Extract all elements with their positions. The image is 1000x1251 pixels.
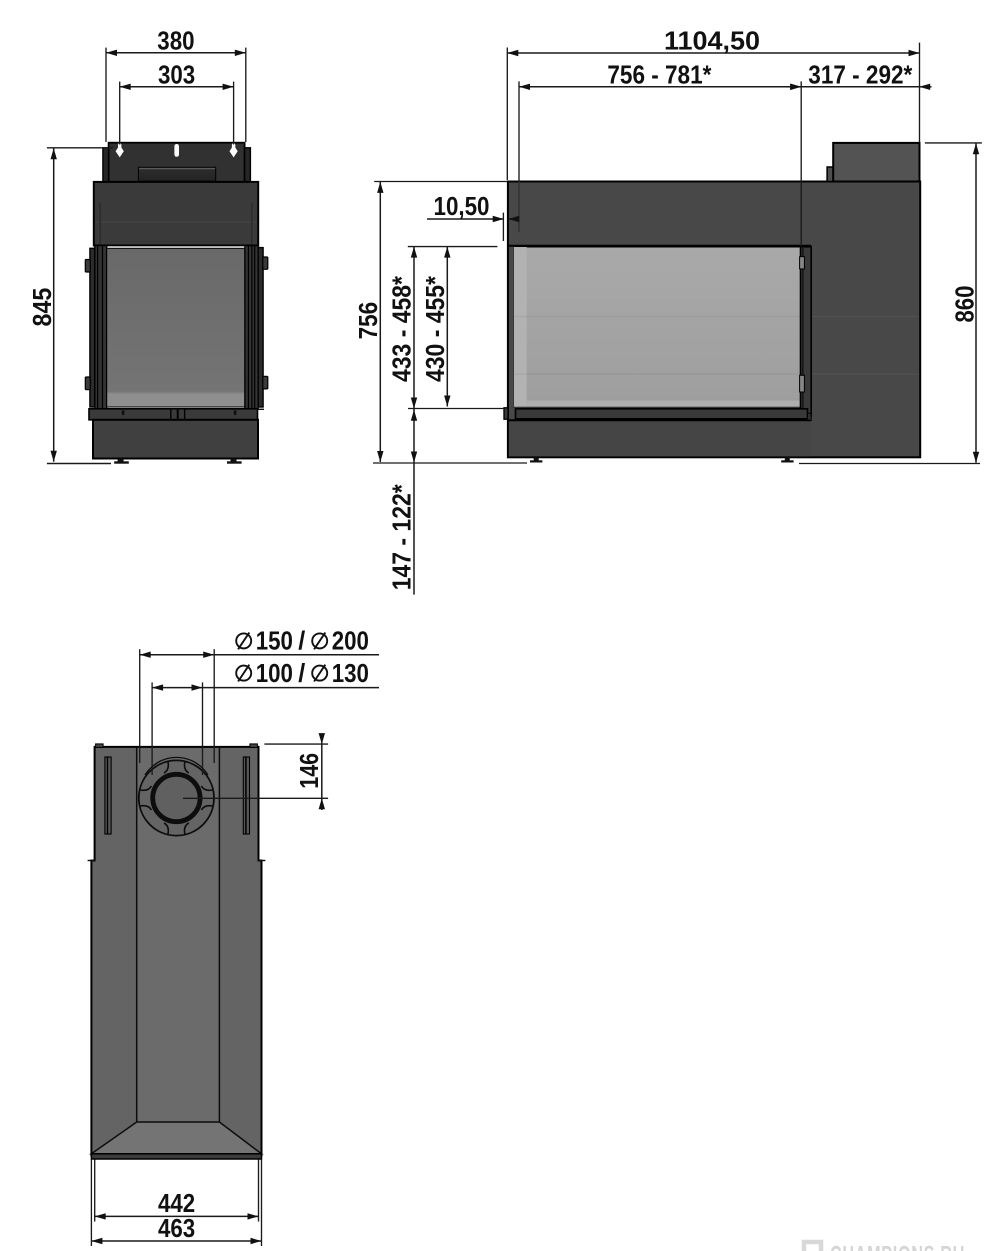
svg-text:200: 200	[332, 626, 369, 656]
svg-text:433 - 458*: 433 - 458*	[387, 275, 417, 382]
svg-text:430 - 455*: 430 - 455*	[420, 275, 450, 382]
svg-text:303: 303	[158, 59, 195, 89]
svg-text:756 - 781*: 756 - 781*	[607, 59, 712, 89]
svg-text:147 - 122*: 147 - 122*	[387, 484, 417, 591]
svg-text:860: 860	[950, 285, 980, 322]
svg-text:845: 845	[27, 288, 57, 327]
svg-text:10,50: 10,50	[434, 191, 490, 221]
svg-text:100: 100	[256, 658, 293, 688]
svg-text:380: 380	[157, 25, 194, 55]
svg-text:317 - 292*: 317 - 292*	[808, 59, 913, 89]
svg-text:/: /	[298, 626, 305, 656]
svg-text:146: 146	[294, 753, 324, 789]
svg-text:130: 130	[332, 658, 369, 688]
svg-text:/: /	[298, 658, 305, 688]
svg-text:463: 463	[158, 1213, 195, 1243]
svg-text:150: 150	[256, 626, 293, 656]
svg-text:756: 756	[353, 302, 383, 340]
svg-text:CHAMPIONS.RU: CHAMPIONS.RU	[830, 1242, 965, 1251]
svg-text:1104,50: 1104,50	[664, 25, 760, 55]
